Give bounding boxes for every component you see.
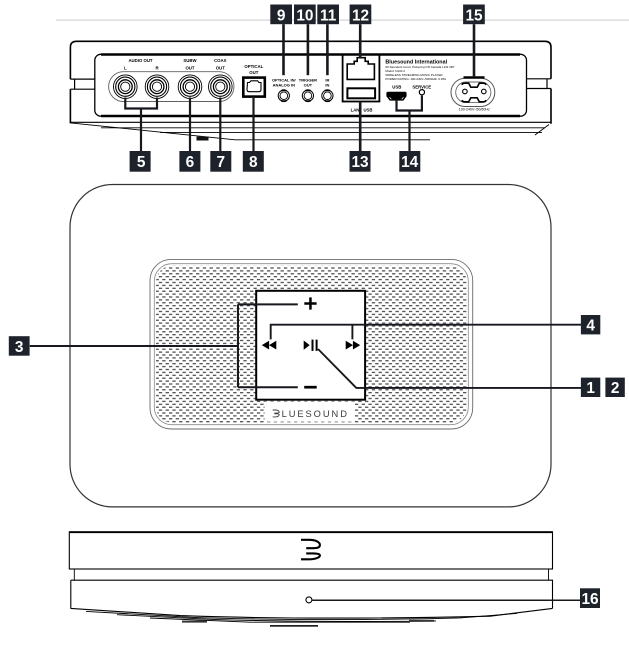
svg-text:LUESOUND: LUESOUND — [282, 409, 349, 419]
svg-text:11: 11 — [320, 7, 337, 24]
svg-text:SERVICE: SERVICE — [412, 85, 431, 90]
svg-text:IN: IN — [325, 82, 329, 87]
svg-text:12: 12 — [352, 7, 369, 24]
svg-text:100-240V~50/60Hz: 100-240V~50/60Hz — [459, 108, 490, 112]
svg-text:OPTICAL: OPTICAL — [244, 64, 263, 69]
svg-text:7: 7 — [217, 154, 226, 171]
svg-text:10: 10 — [296, 7, 313, 24]
svg-text:2: 2 — [611, 380, 620, 397]
svg-text:POWER RATING: 100-240V~50/60HZ: POWER RATING: 100-240V~50/60HZ, 0.35A — [385, 77, 446, 81]
svg-text:L: L — [124, 66, 127, 71]
svg-text:OUT: OUT — [249, 70, 258, 75]
svg-text:OUT: OUT — [185, 66, 194, 71]
svg-text:ANALOG IN: ANALOG IN — [273, 82, 296, 87]
svg-text:6: 6 — [186, 154, 195, 171]
svg-text:5: 5 — [137, 154, 146, 171]
svg-text:9: 9 — [277, 7, 286, 24]
svg-text:15: 15 — [465, 7, 483, 24]
svg-text:1: 1 — [586, 380, 595, 397]
svg-text:14: 14 — [401, 154, 419, 171]
svg-text:OUT: OUT — [304, 82, 313, 87]
svg-text:8: 8 — [249, 154, 258, 171]
svg-text:3: 3 — [15, 339, 24, 356]
svg-text:AUDIO OUT: AUDIO OUT — [128, 58, 152, 63]
svg-text:COAX: COAX — [214, 58, 227, 63]
svg-text:4: 4 — [586, 318, 595, 335]
svg-text:13: 13 — [351, 154, 368, 171]
svg-text:USB: USB — [392, 85, 401, 90]
svg-text:OUT: OUT — [216, 66, 225, 71]
svg-text:USB: USB — [363, 108, 372, 113]
svg-text:SUBW: SUBW — [183, 58, 197, 63]
svg-text:LAN: LAN — [351, 108, 360, 113]
svg-text:16: 16 — [581, 591, 598, 608]
